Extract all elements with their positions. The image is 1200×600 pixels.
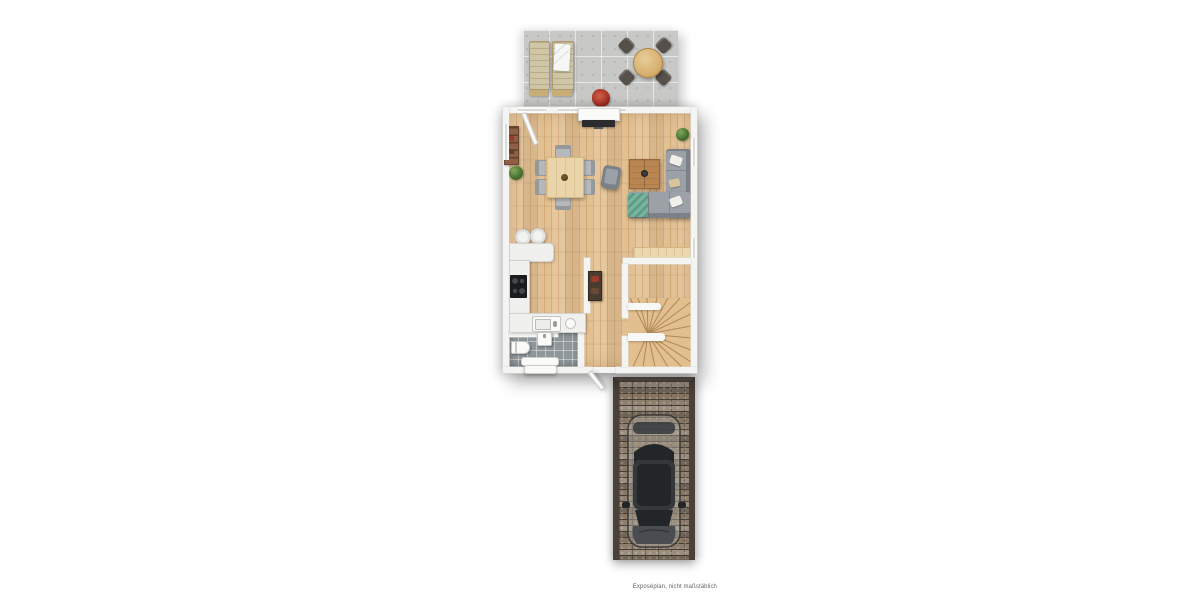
- pillow: [669, 195, 683, 208]
- wall-living-hall: [623, 258, 691, 264]
- wall-bottom-right: [616, 367, 697, 373]
- window-right-upper: [691, 138, 697, 166]
- wardrobe: [588, 271, 602, 301]
- stair-rail-upper: [628, 303, 661, 310]
- sun-lounger: [529, 41, 550, 90]
- window-top: [518, 107, 546, 113]
- coffee-table: [629, 159, 660, 189]
- dining-table: [546, 157, 584, 198]
- toilet: [511, 341, 530, 354]
- wall-bathroom-right: [578, 331, 584, 367]
- sun-lounger-footrest: [529, 90, 548, 96]
- outdoor-chair: [617, 68, 635, 86]
- wardrobe-decor: [591, 288, 600, 295]
- pillow: [669, 154, 683, 166]
- terrace: [523, 30, 678, 108]
- teal-throw: [628, 193, 648, 217]
- dining-chair: [555, 197, 571, 210]
- disclaimer-text: Exposéplan, nicht maßstäblich: [517, 584, 717, 590]
- floor-plan: Exposéplan, nicht maßstäblich: [0, 0, 1200, 600]
- entrance-door-leaf: [588, 370, 605, 390]
- pillow: [668, 178, 680, 188]
- kitchen-sink: [532, 316, 561, 332]
- towel: [553, 44, 570, 72]
- stair-rail-lower: [628, 333, 665, 341]
- table-centerpiece: [561, 174, 568, 181]
- outdoor-chair: [617, 36, 635, 54]
- washbasin: [537, 332, 552, 346]
- sun-lounger-footrest: [552, 90, 572, 96]
- red-plant: [592, 89, 610, 107]
- entry-step: [524, 365, 557, 374]
- bowl: [641, 170, 648, 177]
- toilet-tank-line: [515, 342, 517, 353]
- outdoor-table: [633, 48, 663, 78]
- window-left: [503, 124, 509, 160]
- wardrobe-decor: [591, 275, 600, 282]
- bowl: [565, 318, 576, 329]
- window-right-lower: [691, 238, 697, 258]
- bar-stool: [530, 228, 546, 244]
- faucet: [543, 334, 546, 338]
- kitchen-counter-bottom: [509, 313, 586, 333]
- sink-basin: [535, 319, 551, 330]
- armchair-seat: [604, 168, 618, 185]
- tv: [582, 120, 615, 127]
- faucet: [553, 321, 557, 327]
- cooktop: [510, 275, 527, 298]
- tv-stand: [594, 127, 603, 129]
- sofa-bottom-section: [628, 192, 691, 218]
- car: [621, 412, 687, 552]
